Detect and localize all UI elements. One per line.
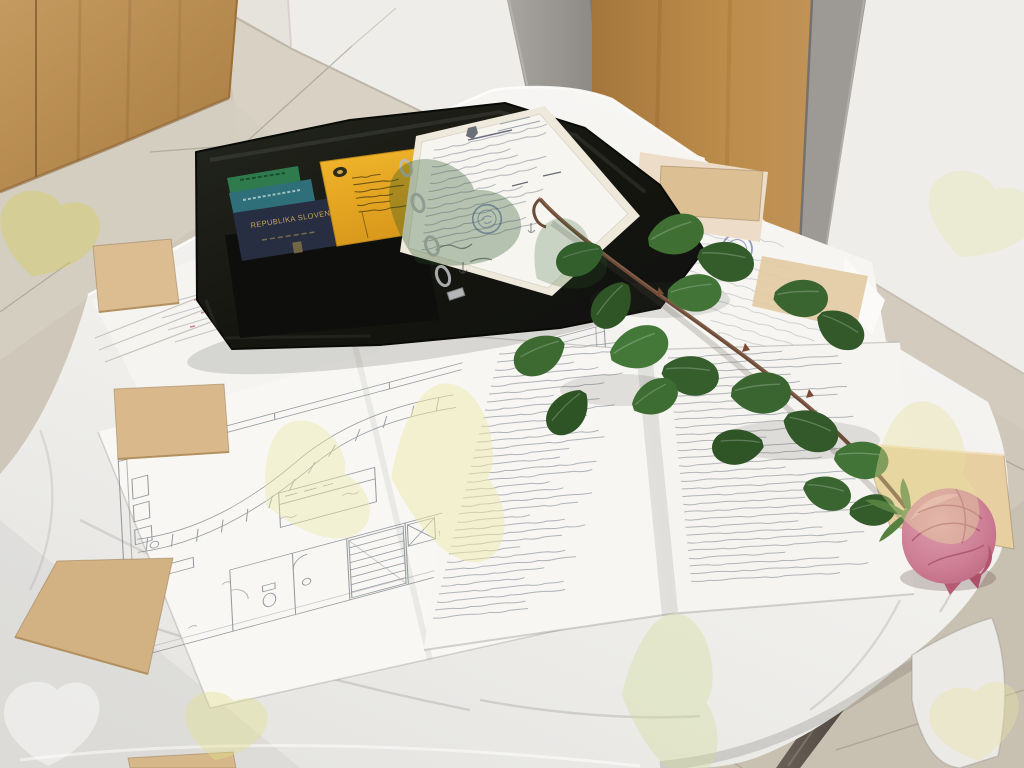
passport-emblem [292, 241, 303, 253]
photo-room-scene: REPUBLIKA SLOVENIJA [0, 0, 1024, 768]
plywood-board [114, 384, 229, 459]
scene-canvas: REPUBLIKA SLOVENIJA [0, 0, 1024, 768]
plywood-board [93, 239, 179, 312]
